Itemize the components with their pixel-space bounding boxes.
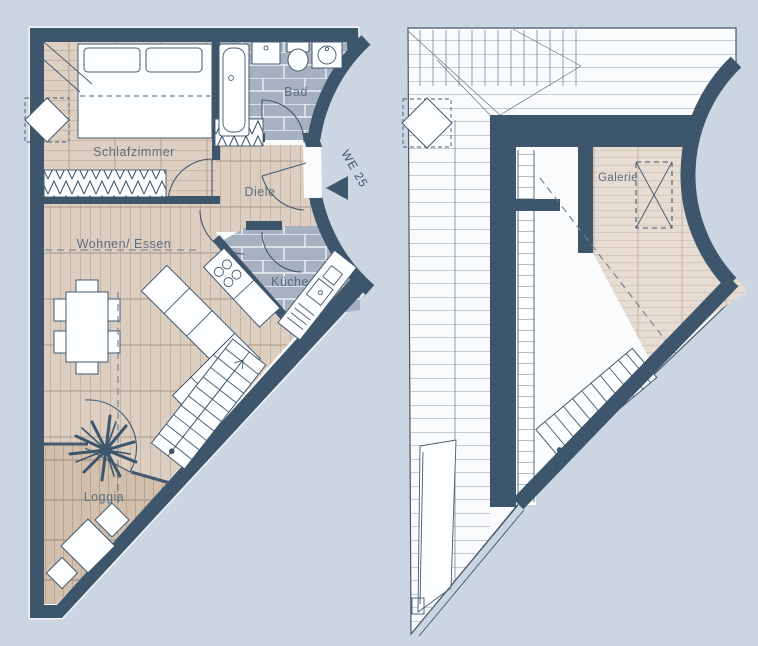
room-label-hall: Diele	[245, 185, 276, 199]
room-label-living: Wohnen/ Essen	[77, 237, 172, 251]
toilet	[287, 42, 309, 71]
bathtub	[219, 44, 249, 136]
floor-plan-page: WE 25 Schlafzimmer Bad Diele Wohnen/ Ess…	[0, 0, 758, 646]
pillow	[84, 48, 140, 72]
floor-plan-drawing: WE 25 Schlafzimmer Bad Diele Wohnen/ Ess…	[0, 0, 758, 646]
pillow	[146, 48, 202, 72]
chair	[54, 331, 66, 353]
entrance-door-gap	[312, 140, 313, 198]
upper-wall-stub	[516, 199, 560, 211]
upper-floor-plan: Galerie	[402, 25, 758, 636]
bed	[78, 44, 212, 138]
upper-wall-vertical	[490, 115, 516, 507]
chair	[76, 362, 98, 374]
room-label-gallery: Galerie	[598, 172, 638, 184]
bath-sink	[252, 42, 280, 64]
room-label-bedroom: Schlafzimmer	[93, 145, 175, 159]
room-label-loggia: Loggia	[84, 490, 125, 504]
wall-hall-kitchen-stub	[246, 221, 282, 230]
bath-vanity	[312, 42, 342, 68]
roof-hatch-top	[408, 28, 740, 118]
room-label-bath: Bad	[284, 85, 308, 99]
wardrobe-bedroom	[44, 170, 166, 197]
chair	[76, 280, 98, 292]
room-label-kitchen: Küche	[271, 275, 309, 289]
chair	[54, 299, 66, 321]
